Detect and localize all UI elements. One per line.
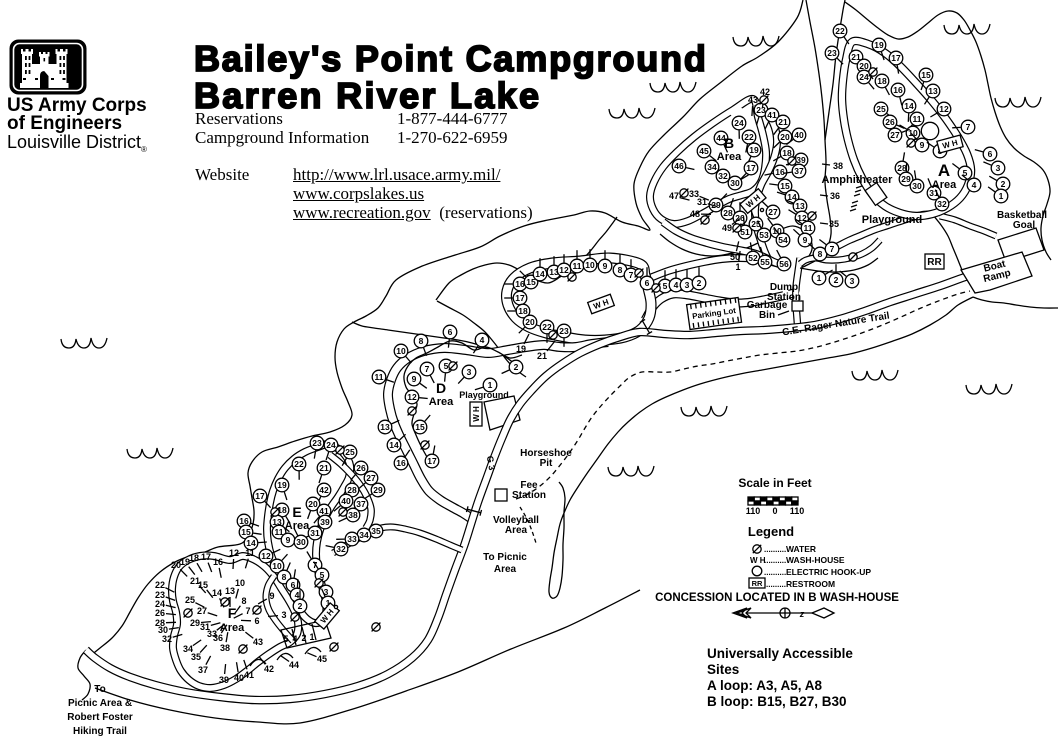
svg-text:4: 4 — [292, 634, 297, 644]
svg-text:6: 6 — [448, 327, 453, 337]
svg-text:2: 2 — [697, 278, 702, 288]
svg-text:17: 17 — [255, 491, 265, 501]
svg-text:7: 7 — [425, 364, 430, 374]
svg-text:46: 46 — [674, 161, 684, 171]
svg-text:34: 34 — [707, 162, 717, 172]
svg-text:14: 14 — [212, 588, 222, 598]
svg-text:12: 12 — [229, 548, 239, 558]
svg-text:32: 32 — [336, 544, 346, 554]
svg-text:D: D — [436, 380, 446, 396]
svg-text:8: 8 — [419, 336, 424, 346]
svg-text:12: 12 — [939, 104, 949, 114]
svg-text:37: 37 — [198, 665, 208, 675]
svg-text:38: 38 — [348, 510, 358, 520]
svg-text:Sites: Sites — [707, 662, 739, 677]
svg-text:16: 16 — [515, 279, 525, 289]
svg-text:20: 20 — [525, 317, 535, 327]
svg-text:Robert Foster: Robert Foster — [67, 712, 133, 723]
svg-text:..........: .......... — [764, 556, 786, 565]
svg-text:W H: W H — [472, 406, 481, 422]
svg-text:34: 34 — [359, 530, 369, 540]
svg-text:11: 11 — [375, 372, 384, 382]
svg-text:1: 1 — [488, 380, 493, 390]
svg-text:7: 7 — [245, 606, 250, 616]
svg-text:5: 5 — [283, 634, 288, 644]
svg-text:11: 11 — [913, 114, 922, 124]
svg-text:18: 18 — [518, 306, 528, 316]
svg-text:21: 21 — [778, 117, 788, 127]
svg-text:Bin: Bin — [759, 310, 775, 321]
svg-text:2: 2 — [301, 633, 306, 643]
svg-text:5: 5 — [663, 281, 668, 291]
svg-text:7: 7 — [629, 270, 634, 280]
svg-text:19: 19 — [749, 145, 759, 155]
svg-text:9: 9 — [269, 591, 274, 601]
svg-text:26: 26 — [885, 117, 895, 127]
svg-text:35: 35 — [191, 652, 201, 662]
svg-text:10: 10 — [272, 561, 282, 571]
svg-text:B loop: B15, B27, B30: B loop: B15, B27, B30 — [707, 694, 847, 709]
svg-text:31: 31 — [697, 197, 707, 207]
svg-text:52: 52 — [748, 253, 758, 263]
svg-text:Scale in Feet: Scale in Feet — [738, 476, 811, 490]
svg-text:6: 6 — [645, 278, 650, 288]
svg-text:To Picnic: To Picnic — [483, 552, 527, 563]
svg-text:Area: Area — [429, 396, 454, 408]
svg-text:49: 49 — [722, 223, 732, 233]
svg-text:19: 19 — [277, 480, 287, 490]
svg-text:41: 41 — [767, 110, 777, 120]
svg-text:4: 4 — [295, 590, 300, 600]
svg-text:15: 15 — [921, 70, 931, 80]
svg-text:9: 9 — [803, 235, 808, 245]
svg-text:4: 4 — [674, 280, 679, 290]
svg-text:RESTROOM: RESTROOM — [786, 579, 835, 589]
svg-text:23: 23 — [827, 48, 837, 58]
svg-text:14: 14 — [904, 101, 914, 111]
svg-text:6: 6 — [988, 149, 993, 159]
svg-text:Amphitheater: Amphitheater — [822, 174, 894, 186]
svg-text:42: 42 — [264, 664, 274, 674]
svg-text:38: 38 — [220, 643, 230, 653]
svg-text:32: 32 — [162, 634, 172, 644]
svg-text:14: 14 — [535, 269, 545, 279]
svg-text:35: 35 — [371, 526, 381, 536]
svg-text:Area: Area — [285, 520, 310, 532]
svg-text:16: 16 — [775, 167, 785, 177]
svg-text:25: 25 — [345, 447, 355, 457]
svg-text:To: To — [94, 684, 105, 695]
svg-text:.........: ......... — [766, 580, 786, 589]
svg-text:Hiking Trail: Hiking Trail — [73, 726, 127, 737]
svg-text:41: 41 — [319, 506, 329, 516]
svg-text:30: 30 — [296, 537, 306, 547]
svg-text:110: 110 — [746, 506, 761, 516]
svg-text:32: 32 — [718, 171, 728, 181]
svg-text:19: 19 — [874, 40, 884, 50]
svg-text:29: 29 — [901, 174, 911, 184]
svg-text:55: 55 — [760, 257, 770, 267]
svg-text:5: 5 — [444, 361, 449, 371]
svg-text:3: 3 — [850, 276, 855, 286]
svg-text:7: 7 — [830, 244, 835, 254]
svg-text:Legend: Legend — [748, 524, 794, 539]
svg-text:28: 28 — [347, 485, 357, 495]
svg-text:B: B — [724, 135, 734, 151]
svg-text:33: 33 — [347, 534, 357, 544]
svg-text:18: 18 — [189, 553, 199, 563]
svg-text:47: 47 — [669, 191, 679, 201]
svg-text:Playground: Playground — [459, 390, 509, 400]
svg-text:56: 56 — [779, 259, 789, 269]
svg-text:16: 16 — [396, 458, 406, 468]
svg-text:z: z — [799, 609, 805, 619]
svg-text:4: 4 — [972, 180, 977, 190]
svg-text:22: 22 — [542, 322, 552, 332]
svg-text:43: 43 — [253, 637, 263, 647]
svg-text:23: 23 — [756, 105, 766, 115]
svg-text:13: 13 — [795, 201, 805, 211]
svg-text:13: 13 — [928, 86, 938, 96]
svg-text:27: 27 — [366, 473, 376, 483]
svg-text:24: 24 — [326, 440, 336, 450]
svg-text:110: 110 — [790, 506, 805, 516]
svg-text:42: 42 — [319, 485, 329, 495]
svg-text:15: 15 — [415, 422, 425, 432]
svg-text:Pit: Pit — [540, 458, 553, 469]
svg-text:Area: Area — [932, 179, 957, 191]
svg-text:13: 13 — [225, 586, 235, 596]
svg-text:39: 39 — [219, 675, 229, 685]
svg-text:10: 10 — [396, 346, 406, 356]
svg-text:A loop: A3, A5, A8: A loop: A3, A5, A8 — [707, 678, 822, 693]
svg-text:23: 23 — [559, 326, 569, 336]
svg-text:1: 1 — [817, 273, 822, 283]
svg-text:3: 3 — [996, 163, 1001, 173]
svg-text:27: 27 — [197, 606, 207, 616]
svg-text:24: 24 — [859, 72, 869, 82]
svg-text:0: 0 — [772, 506, 777, 516]
svg-text:22: 22 — [294, 459, 304, 469]
svg-text:10: 10 — [585, 260, 595, 270]
svg-text:3: 3 — [467, 367, 472, 377]
svg-text:1: 1 — [999, 191, 1004, 201]
svg-text:9: 9 — [920, 140, 925, 150]
svg-text:40: 40 — [794, 130, 804, 140]
svg-text:37: 37 — [356, 499, 366, 509]
svg-text:54: 54 — [778, 235, 788, 245]
svg-text:41: 41 — [244, 670, 254, 680]
svg-text:48: 48 — [690, 209, 700, 219]
svg-text:21: 21 — [537, 351, 547, 361]
svg-text:31: 31 — [310, 528, 320, 538]
svg-text:11: 11 — [245, 548, 255, 558]
svg-text:E: E — [292, 504, 301, 520]
svg-text:22: 22 — [155, 580, 165, 590]
svg-text:16: 16 — [213, 557, 223, 567]
svg-text:20: 20 — [780, 132, 790, 142]
svg-text:Universally Accessible: Universally Accessible — [707, 646, 853, 661]
svg-text:37: 37 — [794, 166, 804, 176]
svg-text:39: 39 — [320, 517, 330, 527]
svg-text:28: 28 — [897, 163, 907, 173]
svg-text:1: 1 — [309, 632, 314, 642]
svg-text:20: 20 — [859, 61, 869, 71]
svg-text:44: 44 — [289, 660, 299, 670]
svg-text:45: 45 — [699, 146, 709, 156]
svg-text:10: 10 — [235, 578, 245, 588]
svg-text:14: 14 — [246, 538, 256, 548]
svg-text:15: 15 — [241, 527, 251, 537]
svg-text:2: 2 — [834, 275, 839, 285]
svg-text:16: 16 — [893, 85, 903, 95]
svg-text:27: 27 — [768, 207, 778, 217]
svg-text:8: 8 — [618, 265, 623, 275]
svg-text:20: 20 — [308, 499, 318, 509]
svg-text:Picnic Area &: Picnic Area & — [68, 698, 132, 709]
svg-text:12: 12 — [559, 265, 569, 275]
svg-text:21: 21 — [319, 463, 329, 473]
svg-text:8: 8 — [282, 572, 287, 582]
svg-text:Area: Area — [717, 151, 742, 163]
svg-text:Playground: Playground — [862, 214, 923, 226]
svg-text:3: 3 — [685, 280, 690, 290]
svg-text:29: 29 — [190, 618, 200, 628]
svg-text:16: 16 — [239, 516, 249, 526]
svg-text:9: 9 — [603, 261, 608, 271]
svg-text:17: 17 — [746, 163, 756, 173]
svg-text:26: 26 — [155, 608, 165, 618]
svg-text:12: 12 — [407, 392, 417, 402]
svg-text:43: 43 — [748, 95, 758, 105]
svg-text:Area: Area — [505, 525, 528, 536]
svg-text:17: 17 — [201, 552, 211, 562]
svg-text:25: 25 — [185, 595, 195, 605]
svg-text:F: F — [228, 605, 237, 621]
svg-text:17: 17 — [515, 293, 525, 303]
svg-text:53: 53 — [759, 230, 769, 240]
svg-text:A: A — [938, 161, 950, 180]
svg-text:40: 40 — [234, 673, 244, 683]
svg-text:Area: Area — [494, 564, 517, 575]
svg-text:12: 12 — [261, 551, 271, 561]
svg-text:28: 28 — [723, 208, 733, 218]
svg-text:..........: .......... — [764, 545, 786, 554]
svg-text:22: 22 — [744, 132, 754, 142]
svg-text:WASH-HOUSE: WASH-HOUSE — [786, 555, 845, 565]
svg-text:11: 11 — [573, 261, 582, 271]
svg-text:8: 8 — [818, 249, 823, 259]
svg-text:ELECTRIC HOOK-UP: ELECTRIC HOOK-UP — [786, 567, 871, 577]
svg-text:32: 32 — [937, 199, 947, 209]
svg-text:38: 38 — [833, 161, 843, 171]
svg-text:CONCESSION LOCATED IN B WASH-H: CONCESSION LOCATED IN B WASH-HOUSE — [655, 592, 899, 604]
svg-text:15: 15 — [198, 580, 208, 590]
svg-text:WATER: WATER — [786, 544, 816, 554]
svg-text:RR: RR — [752, 579, 763, 588]
svg-text:Area: Area — [220, 622, 245, 634]
svg-text:2: 2 — [514, 362, 519, 372]
svg-text:6: 6 — [254, 616, 259, 626]
svg-text:27: 27 — [890, 130, 900, 140]
svg-text:7: 7 — [966, 122, 971, 132]
svg-text:8: 8 — [241, 596, 246, 606]
svg-text:Station: Station — [512, 490, 546, 501]
svg-text:35: 35 — [829, 219, 839, 229]
svg-text:9: 9 — [412, 374, 417, 384]
svg-text:45: 45 — [317, 654, 327, 664]
svg-text:RR: RR — [927, 257, 942, 268]
svg-text:14: 14 — [389, 440, 399, 450]
svg-text:17: 17 — [891, 53, 901, 63]
svg-text:11: 11 — [804, 223, 813, 233]
svg-text:13: 13 — [380, 422, 390, 432]
svg-text:..........: .......... — [764, 568, 786, 577]
svg-text:40: 40 — [341, 496, 351, 506]
svg-text:2: 2 — [298, 601, 303, 611]
svg-text:36: 36 — [830, 191, 840, 201]
svg-text:30: 30 — [730, 178, 740, 188]
svg-text:15: 15 — [780, 181, 790, 191]
svg-text:30: 30 — [912, 181, 922, 191]
svg-text:9: 9 — [286, 535, 291, 545]
svg-text:3: 3 — [281, 610, 286, 620]
svg-text:29: 29 — [373, 485, 383, 495]
svg-text:26: 26 — [356, 463, 366, 473]
svg-text:2: 2 — [1001, 179, 1006, 189]
svg-text:24: 24 — [734, 118, 744, 128]
svg-text:39: 39 — [796, 155, 806, 165]
svg-text:18: 18 — [877, 76, 887, 86]
svg-text:23: 23 — [312, 438, 322, 448]
svg-text:4: 4 — [480, 335, 485, 345]
svg-text:22: 22 — [835, 26, 845, 36]
svg-text:36: 36 — [213, 633, 223, 643]
svg-text:25: 25 — [876, 104, 886, 114]
svg-text:17: 17 — [427, 456, 437, 466]
svg-text:19: 19 — [516, 344, 526, 354]
svg-text:1: 1 — [735, 262, 740, 272]
